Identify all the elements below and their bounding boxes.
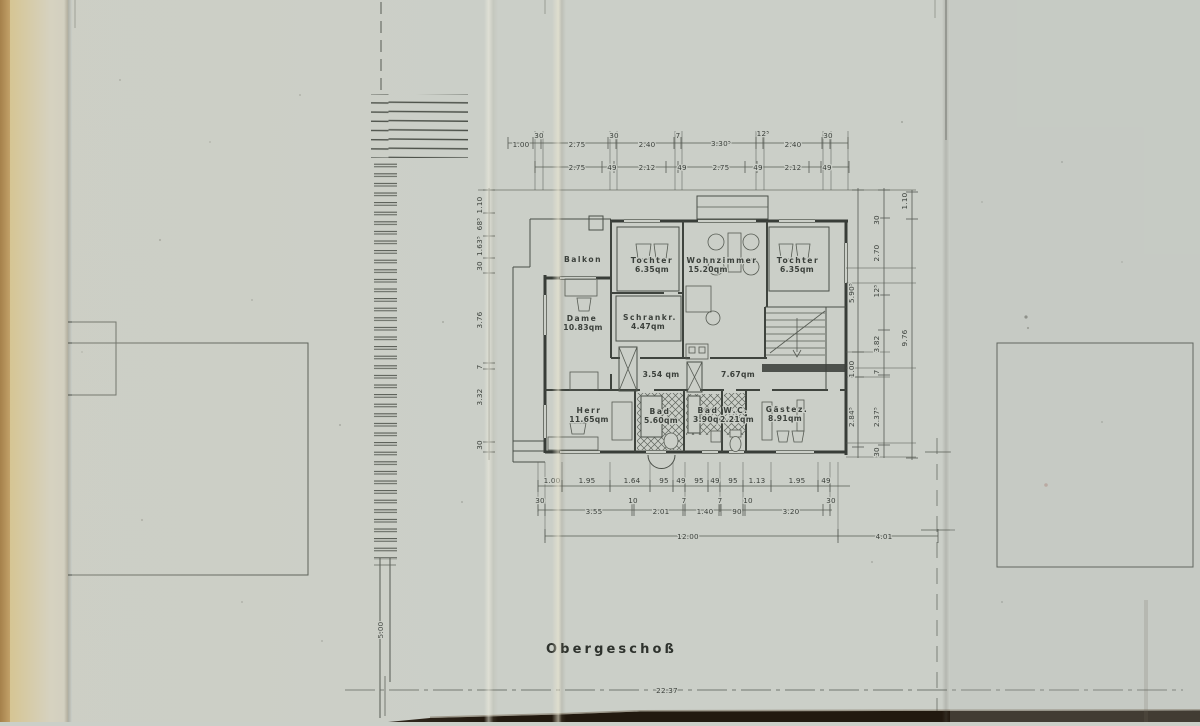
dim: 49 bbox=[676, 476, 686, 485]
dim: 3.32 bbox=[475, 389, 484, 406]
dim: 10 bbox=[628, 496, 638, 505]
dim: 49 bbox=[677, 163, 687, 172]
adjacent-building-outline bbox=[18, 322, 308, 575]
room-label-bad1: Bad bbox=[650, 407, 671, 416]
dim: 2.70 bbox=[872, 244, 881, 261]
dim: 7 bbox=[872, 370, 881, 375]
room-label-wohnzimmer: Wohnzimmer bbox=[686, 256, 757, 265]
dim: 1.10 bbox=[475, 196, 484, 213]
dim: 1.00 bbox=[513, 140, 530, 149]
north-balconette bbox=[697, 196, 768, 219]
dim: 30 bbox=[609, 131, 619, 140]
extension-lines-bottom bbox=[538, 462, 838, 540]
wardrobe bbox=[570, 372, 598, 390]
dim: 30 bbox=[826, 496, 836, 505]
dim: 2.40 bbox=[785, 140, 802, 149]
room-area-dame: 10.83qm bbox=[563, 323, 603, 332]
cistern bbox=[730, 430, 741, 437]
bed-herr bbox=[548, 437, 598, 450]
dim: 2.12 bbox=[785, 163, 802, 172]
wardrobe-herr bbox=[612, 402, 632, 440]
room-area-wc: 2.21qm bbox=[720, 415, 754, 424]
dim: 1.13 bbox=[749, 476, 766, 485]
room-area-wohnzimmer: 15.20qm bbox=[688, 265, 728, 274]
room-area-herr: 11.65qm bbox=[569, 415, 609, 424]
dim: 4.01 bbox=[876, 532, 893, 541]
room-area-gaestez: 8.91qm bbox=[768, 414, 802, 423]
stair-cut-wall bbox=[762, 364, 846, 372]
dim: 95 bbox=[694, 476, 704, 485]
room-label-bad2: Bad bbox=[698, 406, 719, 415]
door-swing bbox=[648, 455, 675, 469]
room-area-tochter1: 6.35qm bbox=[635, 265, 669, 274]
dim: 1.64 bbox=[624, 476, 641, 485]
table bbox=[728, 233, 741, 272]
room-area-schrank: 4.47qm bbox=[631, 322, 665, 331]
room-area-tochter2: 6.35qm bbox=[780, 265, 814, 274]
room-label-gaestez: Gästez. bbox=[766, 405, 809, 414]
room-label-balkon: Balkon bbox=[564, 255, 602, 264]
dim: 90 bbox=[732, 507, 742, 516]
dimension-rows-top: 1.00 30 2.75 30 2.40 7 3.30⁵ 12⁵ 2.40 30… bbox=[508, 129, 849, 190]
scanned-blueprint-page: Balkon Tochter 6.35qm Wohnzimmer 15.20qm… bbox=[0, 0, 1200, 722]
scan-edge-bottom bbox=[388, 711, 1200, 723]
dim: 2.12 bbox=[639, 163, 656, 172]
toilet bbox=[730, 437, 741, 452]
dim: 49 bbox=[753, 163, 763, 172]
dim: 95 bbox=[728, 476, 738, 485]
dim: 7 bbox=[718, 496, 723, 505]
hole-punches bbox=[6, 277, 29, 487]
dim-overall: 22.37 bbox=[656, 686, 678, 695]
dim: 12⁵ bbox=[757, 129, 770, 138]
dim: 3.82 bbox=[872, 336, 881, 353]
dim: 12⁵ bbox=[872, 285, 881, 298]
drawing: Balkon Tochter 6.35qm Wohnzimmer 15.20qm… bbox=[0, 0, 1200, 722]
dim: 49 bbox=[822, 163, 832, 172]
dim: 30 bbox=[534, 131, 544, 140]
dim-ticks-right bbox=[852, 190, 918, 458]
dim: 2.01 bbox=[653, 507, 670, 516]
dim: 30 bbox=[872, 447, 881, 457]
dim: 95 bbox=[659, 476, 669, 485]
dim: 2.75 bbox=[569, 140, 586, 149]
room-area-bad1: 5.60qm bbox=[644, 416, 678, 425]
hall-area-1: 3.54 qm bbox=[643, 370, 680, 379]
room-label-wc: W.C. bbox=[723, 406, 748, 415]
dim: 7 bbox=[475, 365, 484, 370]
dim: 10 bbox=[743, 496, 753, 505]
room-label-schrank: Schrankr. bbox=[623, 313, 677, 322]
dim-5-00: 5.00 bbox=[376, 621, 385, 638]
dim: 1.95 bbox=[579, 476, 596, 485]
room-label-dame: Dame bbox=[567, 314, 598, 323]
dim: 3.76 bbox=[475, 311, 484, 328]
overall-dimensions: 5.00 22.37 bbox=[345, 621, 1183, 716]
dim: 49 bbox=[710, 476, 720, 485]
dim: 30 bbox=[823, 131, 833, 140]
registration-ticks bbox=[75, 0, 935, 28]
dim: 49 bbox=[821, 476, 831, 485]
chimney bbox=[589, 216, 603, 230]
chair bbox=[708, 234, 724, 250]
stool bbox=[706, 311, 720, 325]
balcony-outline bbox=[513, 216, 611, 462]
dim: 30 bbox=[872, 215, 881, 225]
dim: 1.40 bbox=[697, 507, 714, 516]
right-building-outline bbox=[921, 343, 1193, 712]
dim: 1.10 bbox=[900, 192, 909, 209]
dim: 3.20 bbox=[783, 507, 800, 516]
dim: 12.00 bbox=[677, 532, 699, 541]
dim: 68⁵ bbox=[475, 218, 484, 231]
dim: 7 bbox=[682, 496, 687, 505]
staircase bbox=[762, 307, 846, 390]
dim: 3.55 bbox=[586, 507, 603, 516]
sideboard bbox=[686, 286, 711, 312]
dim: 2.75 bbox=[569, 163, 586, 172]
room-label-tochter1: Tochter bbox=[631, 256, 673, 265]
dim: 1.00 bbox=[544, 476, 561, 485]
dimension-column-left: 1.10 68⁵ 1.63⁵ 30 3.76 7 3.32 30 bbox=[475, 188, 495, 460]
dim: 2.75 bbox=[713, 163, 730, 172]
drawing-title: Obergeschoß bbox=[546, 642, 677, 657]
dim: 5.90⁵ bbox=[847, 283, 856, 303]
room-label-tochter2: Tochter bbox=[777, 256, 819, 265]
hall-area-2: 7.67qm bbox=[721, 370, 755, 379]
extension-lines-right bbox=[846, 268, 916, 457]
staircase-hatch bbox=[371, 2, 468, 718]
dim: 2.37⁵ bbox=[872, 407, 881, 427]
basin-2 bbox=[711, 431, 721, 442]
dimension-columns-right: 5.90⁵ 1.00 2.84⁵ 30 2.70 12⁵ 3.82 7 2.37… bbox=[846, 188, 918, 460]
dim: 2.84⁵ bbox=[847, 407, 856, 427]
chair bbox=[743, 234, 759, 250]
dim: 30 bbox=[475, 440, 484, 450]
dim: 1.63⁵ bbox=[475, 236, 484, 256]
washbasin bbox=[664, 433, 678, 449]
dim: 1.95 bbox=[789, 476, 806, 485]
dim: 30 bbox=[475, 261, 484, 271]
dimension-rows-bottom: 1.00 1.95 1.64 95 49 95 49 95 1.13 1.95 … bbox=[535, 462, 938, 543]
dim: 9.76 bbox=[900, 329, 909, 346]
bed-dame bbox=[565, 279, 597, 296]
dim: 3.30⁵ bbox=[711, 139, 731, 148]
dim: 30 bbox=[535, 496, 545, 505]
dim: 1.00 bbox=[847, 360, 856, 377]
room-label-herr: Herr bbox=[576, 406, 601, 415]
dim: 2.40 bbox=[639, 140, 656, 149]
dim: 7 bbox=[676, 131, 681, 140]
dim: 49 bbox=[607, 163, 617, 172]
